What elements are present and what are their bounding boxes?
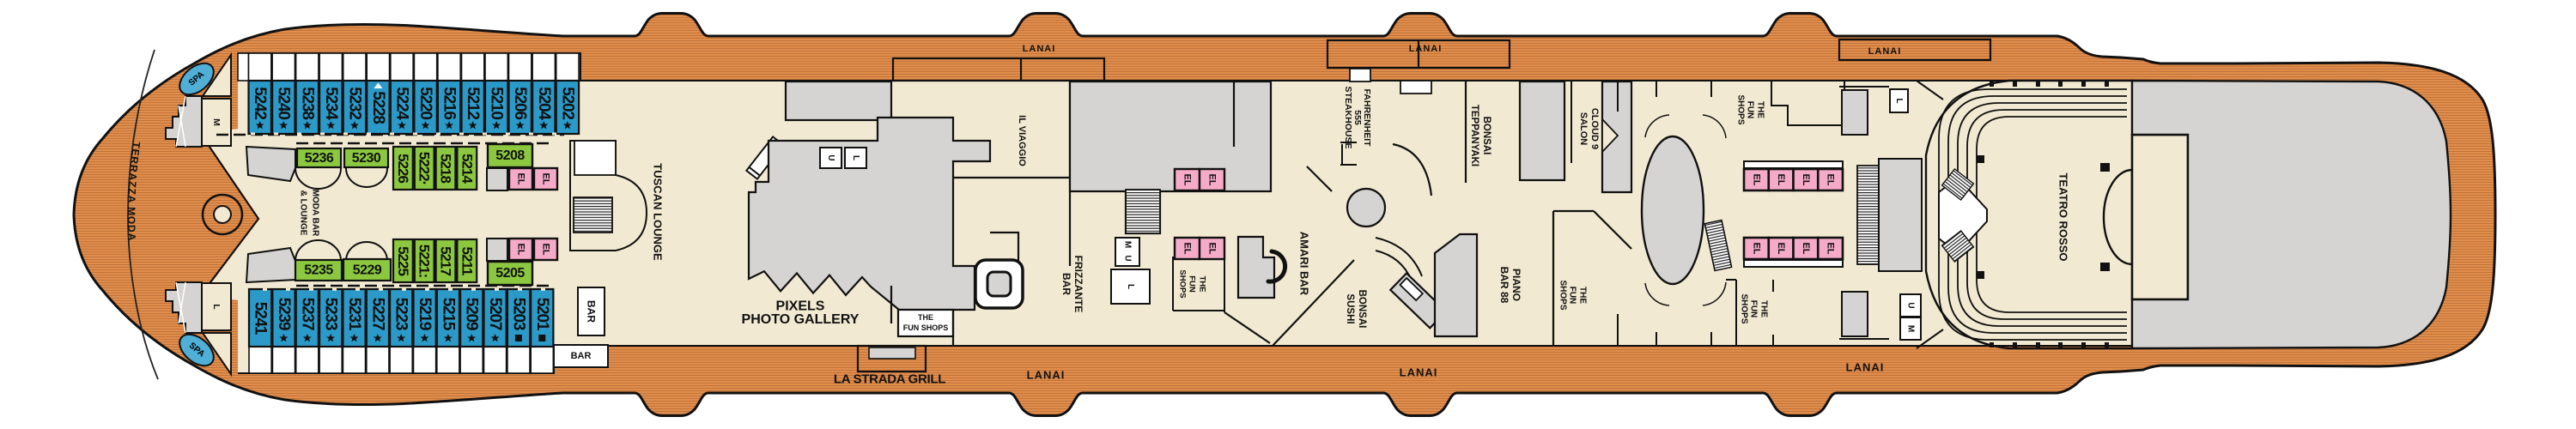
- svg-text:FUN SHOPS: FUN SHOPS: [903, 323, 949, 332]
- svg-text:BAR: BAR: [571, 351, 592, 361]
- svg-text:EL: EL: [1751, 173, 1761, 185]
- svg-text:EL: EL: [516, 243, 526, 255]
- svg-text:EL: EL: [1826, 173, 1836, 185]
- svg-text:BAR 88: BAR 88: [1498, 267, 1510, 304]
- svg-text:SHOPS: SHOPS: [1736, 94, 1746, 124]
- svg-text:SHOPS: SHOPS: [1558, 280, 1568, 310]
- svg-text:5228: 5228: [369, 91, 387, 124]
- svg-text:STEAKHOUSE: STEAKHOUSE: [1343, 87, 1353, 149]
- svg-text:THE: THE: [918, 313, 933, 322]
- svg-text:5202: 5202: [558, 87, 576, 119]
- svg-text:5217: 5217: [438, 246, 454, 275]
- svg-text:EL: EL: [1776, 242, 1786, 254]
- svg-text:SALON: SALON: [1578, 112, 1589, 146]
- svg-text:BAR: BAR: [586, 300, 598, 323]
- svg-text:LANAI: LANAI: [1023, 44, 1056, 54]
- svg-text:L: L: [1894, 98, 1904, 103]
- svg-text:M: M: [211, 118, 222, 126]
- svg-text:5208: 5208: [495, 148, 525, 163]
- svg-text:5201: 5201: [533, 298, 551, 331]
- svg-text:5241: 5241: [252, 302, 270, 335]
- svg-text:L: L: [1126, 284, 1135, 289]
- svg-text:LANAI: LANAI: [1027, 369, 1066, 382]
- svg-text:5205: 5205: [495, 266, 525, 281]
- svg-text:L: L: [851, 155, 860, 160]
- svg-text:5231: 5231: [345, 298, 363, 331]
- svg-text:5236: 5236: [305, 151, 334, 166]
- svg-text:EL: EL: [1207, 242, 1218, 254]
- svg-text:5204: 5204: [535, 87, 553, 120]
- svg-text:TEPPANYAKI: TEPPANYAKI: [1469, 105, 1479, 166]
- svg-text:EL: EL: [1826, 242, 1836, 254]
- svg-text:5206: 5206: [511, 87, 529, 119]
- svg-text:5203: 5203: [509, 298, 527, 330]
- svg-text:BONSAI: BONSAI: [1481, 117, 1492, 155]
- svg-text:M: M: [1906, 325, 1916, 332]
- svg-text:CLOUD 9: CLOUD 9: [1589, 108, 1600, 149]
- svg-text:PIANO: PIANO: [1510, 269, 1522, 301]
- svg-text:SHOPS: SHOPS: [1178, 269, 1188, 298]
- svg-text:EL: EL: [1182, 173, 1193, 185]
- svg-text:EL: EL: [1801, 242, 1811, 254]
- svg-text:EL: EL: [516, 172, 526, 184]
- svg-text:5233: 5233: [322, 298, 340, 330]
- svg-text:5216: 5216: [440, 87, 459, 119]
- svg-text:5215: 5215: [439, 298, 457, 331]
- svg-text:LANAI: LANAI: [1400, 366, 1438, 379]
- svg-text:U: U: [1123, 255, 1133, 261]
- svg-text:AMARI BAR: AMARI BAR: [1298, 232, 1311, 296]
- svg-text:MODA BAR: MODA BAR: [311, 190, 320, 237]
- svg-text:& LOUNGE: & LOUNGE: [299, 190, 308, 236]
- svg-text:LANAI: LANAI: [1868, 46, 1902, 57]
- svg-text:FUN: FUN: [1568, 287, 1577, 305]
- svg-text:LA STRADA GRILL: LA STRADA GRILL: [834, 372, 945, 387]
- svg-text:5211: 5211: [459, 247, 475, 275]
- svg-text:PIXELS: PIXELS: [776, 299, 825, 314]
- svg-text:5235: 5235: [304, 263, 333, 278]
- svg-text:5219: 5219: [416, 298, 434, 330]
- svg-text:BAR: BAR: [1060, 273, 1072, 295]
- svg-text:EL: EL: [1182, 242, 1193, 254]
- svg-text:L: L: [211, 304, 222, 310]
- svg-text:5214: 5214: [459, 154, 475, 184]
- svg-text:5209: 5209: [463, 298, 481, 330]
- svg-text:THE: THE: [1759, 300, 1769, 317]
- svg-text:5232: 5232: [345, 87, 363, 119]
- svg-text:5221:: 5221:: [416, 245, 433, 278]
- svg-text:THE: THE: [1756, 101, 1765, 118]
- svg-text:5234: 5234: [322, 87, 340, 120]
- svg-text:FUN: FUN: [1188, 275, 1197, 293]
- svg-text:FUN: FUN: [1746, 101, 1755, 119]
- svg-text:FRIZZANTE: FRIZZANTE: [1072, 256, 1084, 313]
- svg-text:IL VIAGGIO: IL VIAGGIO: [1017, 115, 1027, 166]
- svg-text:5225: 5225: [395, 246, 411, 275]
- svg-text:5242: 5242: [251, 87, 269, 119]
- svg-text:5212: 5212: [464, 87, 482, 119]
- svg-text:SUSHI: SUSHI: [1345, 293, 1355, 323]
- svg-text:BONSAI: BONSAI: [1357, 290, 1367, 329]
- svg-text:5230: 5230: [352, 151, 381, 166]
- svg-text:THE: THE: [1198, 276, 1207, 293]
- svg-text:5207: 5207: [486, 298, 504, 330]
- svg-text:EL: EL: [541, 243, 551, 255]
- svg-text:5238: 5238: [298, 87, 316, 119]
- svg-text:EL: EL: [1776, 173, 1786, 185]
- svg-text:5229: 5229: [353, 263, 382, 278]
- svg-text:THE: THE: [1578, 287, 1588, 304]
- svg-text:LANAI: LANAI: [1846, 361, 1885, 374]
- svg-text:LANAI: LANAI: [1409, 44, 1443, 54]
- svg-text:5210: 5210: [488, 87, 506, 119]
- svg-text:EL: EL: [1207, 173, 1218, 185]
- svg-text:5218: 5218: [438, 154, 454, 183]
- svg-text:5222·: 5222·: [416, 152, 433, 184]
- svg-text:U: U: [1906, 302, 1916, 308]
- svg-text:EL: EL: [1751, 242, 1761, 254]
- svg-text:5224: 5224: [393, 87, 411, 120]
- svg-text:SHOPS: SHOPS: [1740, 293, 1749, 323]
- svg-text:TEATRO ROSSO: TEATRO ROSSO: [2057, 172, 2070, 261]
- svg-text:5220: 5220: [416, 87, 434, 119]
- svg-text:FUN: FUN: [1749, 300, 1759, 318]
- svg-text:M: M: [1123, 241, 1133, 248]
- svg-text:5239: 5239: [275, 298, 293, 330]
- svg-text:5223: 5223: [392, 298, 410, 330]
- svg-text:5227: 5227: [368, 298, 386, 330]
- svg-text:PHOTO GALLERY: PHOTO GALLERY: [742, 312, 860, 327]
- svg-text:5240: 5240: [275, 87, 293, 119]
- svg-text:U: U: [826, 154, 835, 160]
- svg-text:5226: 5226: [395, 154, 411, 183]
- svg-text:EL: EL: [541, 172, 551, 184]
- svg-text:TUSCAN LOUNGE: TUSCAN LOUNGE: [652, 163, 665, 261]
- svg-text:EL: EL: [1801, 173, 1811, 185]
- svg-text:5237: 5237: [298, 298, 316, 330]
